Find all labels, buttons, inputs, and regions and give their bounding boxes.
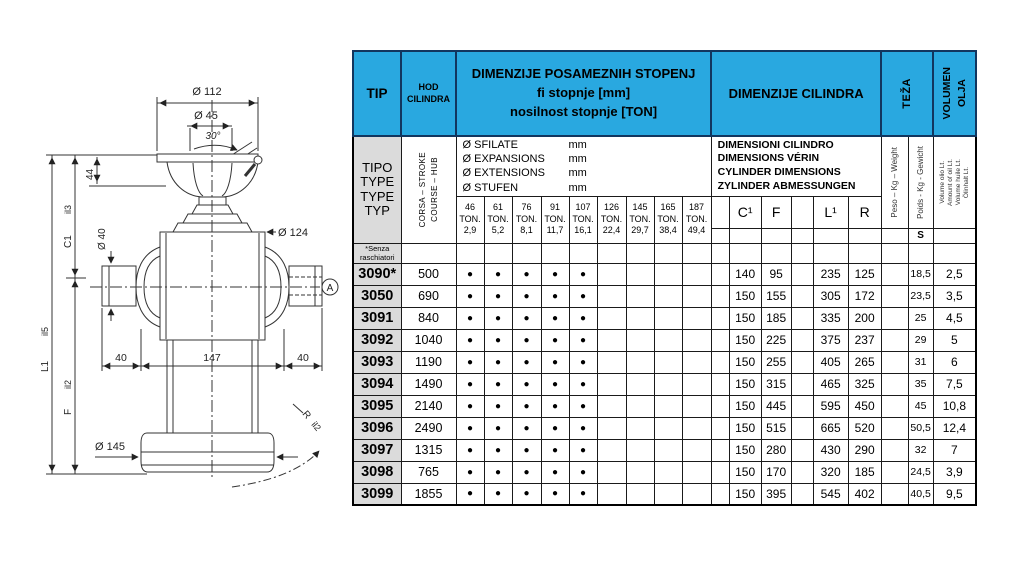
stage-dot-cell: ● xyxy=(484,307,512,329)
spacer-cell xyxy=(791,307,813,329)
spacer-cell xyxy=(711,351,729,373)
stage-dot-cell: ● xyxy=(569,285,597,307)
note-row-empty-cell xyxy=(711,243,729,263)
stroke-cell: 690 xyxy=(401,285,456,307)
note-row-empty-cell xyxy=(597,243,626,263)
stage-dot-cell: ● xyxy=(512,285,541,307)
spacer-cell xyxy=(881,483,908,505)
spacer-cell xyxy=(711,417,729,439)
col-label-l1: L¹ xyxy=(813,196,848,228)
subheader-peso: Peso – Kg – Weight xyxy=(881,136,908,228)
stage-dot-cell xyxy=(597,483,626,505)
stage-dot-cell xyxy=(597,263,626,285)
note-row-empty-cell xyxy=(484,243,512,263)
value-oil-lt: 7,5 xyxy=(933,373,976,395)
value-l1: 405 xyxy=(813,351,848,373)
label-angle30: 30° xyxy=(205,131,220,142)
table-row-3096: 30962490●●●●●15051566552050,512,4 xyxy=(353,417,976,439)
svg-text:C1: C1 xyxy=(63,235,74,248)
value-r: 125 xyxy=(848,263,881,285)
stage-dot-cell: ● xyxy=(569,395,597,417)
spacer-cell xyxy=(711,483,729,505)
stage-dot-cell: ● xyxy=(512,417,541,439)
table-row-3094: 30941490●●●●●150315465325357,5 xyxy=(353,373,976,395)
value-r: 172 xyxy=(848,285,881,307)
stage-dot-cell: ● xyxy=(541,351,569,373)
stage-dot-cell: ● xyxy=(456,285,484,307)
value-f: 255 xyxy=(761,351,791,373)
stage-dot-cell: ● xyxy=(541,417,569,439)
spacer-cell xyxy=(881,307,908,329)
value-oil-lt: 5 xyxy=(933,329,976,351)
spacer-cell xyxy=(711,228,729,243)
value-r: 290 xyxy=(848,439,881,461)
label-40-right: 40 xyxy=(297,352,309,364)
value-l1: 545 xyxy=(813,483,848,505)
value-oil-lt: 4,5 xyxy=(933,307,976,329)
stage-dot-cell: ● xyxy=(541,483,569,505)
ton-col-header-145: 145TON.29,7 xyxy=(626,196,654,243)
value-oil-lt: 6 xyxy=(933,351,976,373)
value-oil-lt: 12,4 xyxy=(933,417,976,439)
stage-dot-cell: ● xyxy=(484,329,512,351)
stage-dot-cell: ● xyxy=(569,461,597,483)
stage-dot-cell xyxy=(682,439,711,461)
value-f: 280 xyxy=(761,439,791,461)
spacer-cell xyxy=(791,351,813,373)
stage-dot-cell xyxy=(626,329,654,351)
ton-col-header-91: 91TON.11,7 xyxy=(541,196,569,243)
stage-dot-cell xyxy=(654,351,682,373)
value-f: 170 xyxy=(761,461,791,483)
note-row-empty-cell xyxy=(761,243,791,263)
value-c1: 150 xyxy=(729,417,761,439)
subheader-tipo-type: TIPOTYPE TYPETYP xyxy=(353,136,401,243)
note-row-empty-cell xyxy=(682,243,711,263)
stage-dot-cell: ● xyxy=(569,483,597,505)
stage-dot-cell: ● xyxy=(456,373,484,395)
value-l1: 465 xyxy=(813,373,848,395)
stage-dot-cell xyxy=(654,285,682,307)
spacer-cell xyxy=(813,228,848,243)
stage-dot-cell: ● xyxy=(456,307,484,329)
spacer-cell xyxy=(791,263,813,285)
svg-text:F: F xyxy=(63,409,74,415)
value-r: 450 xyxy=(848,395,881,417)
stage-dot-cell xyxy=(626,395,654,417)
stroke-cell: 840 xyxy=(401,307,456,329)
header-hod-cilindra: HODCILINDRA xyxy=(401,51,456,136)
ton-col-header-126: 126TON.22,4 xyxy=(597,196,626,243)
label-dia145: Ø 145 xyxy=(95,441,125,453)
stage-dot-cell xyxy=(597,417,626,439)
spacer-cell xyxy=(711,285,729,307)
svg-text:R: R xyxy=(300,409,313,422)
stage-dot-cell: ● xyxy=(484,439,512,461)
stage-dot-cell: ● xyxy=(484,483,512,505)
stage-dot-cell xyxy=(597,351,626,373)
spacer-cell xyxy=(881,417,908,439)
label-dia112: Ø 112 xyxy=(192,86,221,98)
stage-dot-cell: ● xyxy=(541,439,569,461)
note-row-empty-cell xyxy=(791,243,813,263)
stage-dot-cell: ● xyxy=(456,395,484,417)
spacer-cell xyxy=(711,373,729,395)
subheader-dimensioni-block: DIMENSIONI CILINDRO DIMENSIONS VÉRIN CYL… xyxy=(711,136,881,196)
value-l1: 595 xyxy=(813,395,848,417)
note-row-empty-cell xyxy=(512,243,541,263)
radius-leader xyxy=(293,404,303,413)
table-row-3093: 30931190●●●●●150255405265316 xyxy=(353,351,976,373)
stage-dot-cell xyxy=(626,439,654,461)
s-sub-label: S xyxy=(908,228,933,243)
spacer-cell xyxy=(711,329,729,351)
stage-dot-cell: ● xyxy=(456,439,484,461)
stage-dot-cell xyxy=(682,417,711,439)
stage-dot-cell xyxy=(682,263,711,285)
label-40-left: 40 xyxy=(115,352,127,364)
stage-dot-cell xyxy=(597,307,626,329)
spacer-cell xyxy=(791,439,813,461)
stage-dot-cell: ● xyxy=(484,285,512,307)
stage-dot-cell xyxy=(682,351,711,373)
tip-cell: 3093 xyxy=(353,351,401,373)
label-dia45: Ø 45 xyxy=(194,110,218,122)
spacer-cell xyxy=(881,439,908,461)
value-f: 185 xyxy=(761,307,791,329)
value-weight-kg: 18,5 xyxy=(908,263,933,285)
tip-cell: 3092 xyxy=(353,329,401,351)
spacer-cell xyxy=(711,439,729,461)
table-row-3090: 3090*500●●●●●1409523512518,52,5 xyxy=(353,263,976,285)
label-radius: R il2 xyxy=(300,409,323,434)
note-senza-raschiatori: *Senzaraschiatori xyxy=(353,243,401,263)
spacer-cell xyxy=(729,228,761,243)
table-row-3099: 30991855●●●●●15039554540240,59,5 xyxy=(353,483,976,505)
label-44: 44 xyxy=(85,168,96,180)
spacer-cell xyxy=(848,228,881,243)
stroke-cell: 765 xyxy=(401,461,456,483)
stage-dot-cell xyxy=(654,483,682,505)
value-f: 445 xyxy=(761,395,791,417)
value-c1: 150 xyxy=(729,439,761,461)
stage-dot-cell: ● xyxy=(484,351,512,373)
stage-dot-cell: ● xyxy=(512,461,541,483)
header-dimenzije-stopenj: DIMENZIJE POSAMEZNIH STOPENJ fi stopnje … xyxy=(456,51,711,136)
stage-dot-cell: ● xyxy=(569,351,597,373)
stage-dot-cell xyxy=(626,307,654,329)
ton-col-header-165: 165TON.38,4 xyxy=(654,196,682,243)
stage-dot-cell: ● xyxy=(541,461,569,483)
value-oil-lt: 10,8 xyxy=(933,395,976,417)
stage-dot-cell: ● xyxy=(484,417,512,439)
stage-dot-cell: ● xyxy=(569,417,597,439)
header-dimenzije-cilindra: DIMENZIJE CILINDRA xyxy=(711,51,881,136)
stage-dot-cell: ● xyxy=(569,329,597,351)
dimension-line-44 xyxy=(89,157,166,186)
note-row-empty-cell xyxy=(729,243,761,263)
value-r: 185 xyxy=(848,461,881,483)
note-row-empty-cell xyxy=(456,243,484,263)
value-l1: 235 xyxy=(813,263,848,285)
tip-cell: 3090* xyxy=(353,263,401,285)
value-l1: 430 xyxy=(813,439,848,461)
stage-dot-cell: ● xyxy=(456,351,484,373)
stage-dot-cell xyxy=(682,373,711,395)
svg-text:il3: il3 xyxy=(63,205,73,214)
stage-dot-cell xyxy=(682,395,711,417)
subheader-sfilate-block: Ø SFILATEmm Ø EXPANSIONSmm Ø EXTENSIONSm… xyxy=(456,136,711,196)
stage-dot-cell xyxy=(654,263,682,285)
label-147: 147 xyxy=(203,352,221,364)
value-c1: 150 xyxy=(729,373,761,395)
spacer-cell xyxy=(791,395,813,417)
stage-dot-cell xyxy=(597,329,626,351)
value-c1: 150 xyxy=(729,461,761,483)
ton-col-header-61: 61TON.5,2 xyxy=(484,196,512,243)
stage-dot-cell: ● xyxy=(541,373,569,395)
value-c1: 140 xyxy=(729,263,761,285)
value-f: 225 xyxy=(761,329,791,351)
stage-dot-cell: ● xyxy=(541,395,569,417)
spacer-cell xyxy=(791,329,813,351)
ton-col-header-107: 107TON.16,1 xyxy=(569,196,597,243)
stroke-cell: 2140 xyxy=(401,395,456,417)
value-c1: 150 xyxy=(729,285,761,307)
value-oil-lt: 3,9 xyxy=(933,461,976,483)
stage-dot-cell xyxy=(654,439,682,461)
stage-dot-cell xyxy=(597,395,626,417)
value-weight-kg: 25 xyxy=(908,307,933,329)
value-r: 237 xyxy=(848,329,881,351)
stroke-cell: 1855 xyxy=(401,483,456,505)
top-flange xyxy=(157,154,258,162)
subheader-poids: Poids - Kg - Gewicht xyxy=(908,136,933,228)
svg-text:il5: il5 xyxy=(40,327,50,336)
svg-text:il2: il2 xyxy=(63,380,73,389)
stage-dot-cell xyxy=(682,307,711,329)
dimension-line-dia112 xyxy=(157,97,258,151)
value-l1: 375 xyxy=(813,329,848,351)
value-weight-kg: 40,5 xyxy=(908,483,933,505)
value-f: 155 xyxy=(761,285,791,307)
note-row-empty-cell xyxy=(908,243,933,263)
stage-dot-cell xyxy=(654,307,682,329)
stage-dot-cell: ● xyxy=(541,329,569,351)
stage-dot-cell xyxy=(682,461,711,483)
stroke-cell: 1040 xyxy=(401,329,456,351)
stage-dot-cell: ● xyxy=(512,439,541,461)
value-c1: 150 xyxy=(729,395,761,417)
stage-dot-cell xyxy=(626,461,654,483)
stage-dot-cell xyxy=(682,285,711,307)
stage-dot-cell: ● xyxy=(569,263,597,285)
note-row-empty-cell xyxy=(654,243,682,263)
spacer-cell xyxy=(881,373,908,395)
table-row-3091: 3091840●●●●●150185335200254,5 xyxy=(353,307,976,329)
spacer-cell xyxy=(791,228,813,243)
stage-dot-cell: ● xyxy=(569,373,597,395)
spacer-cell xyxy=(881,329,908,351)
value-weight-kg: 23,5 xyxy=(908,285,933,307)
spacer-cell xyxy=(933,228,976,243)
stage-dot-cell: ● xyxy=(569,439,597,461)
value-l1: 665 xyxy=(813,417,848,439)
stage-dot-cell: ● xyxy=(541,307,569,329)
value-l1: 320 xyxy=(813,461,848,483)
stage-dot-cell xyxy=(626,285,654,307)
note-row-empty-cell xyxy=(541,243,569,263)
value-oil-lt: 3,5 xyxy=(933,285,976,307)
stage-dot-cell: ● xyxy=(484,395,512,417)
stage-dot-cell: ● xyxy=(456,483,484,505)
spacer-cell xyxy=(791,373,813,395)
stage-dot-cell: ● xyxy=(569,307,597,329)
value-l1: 335 xyxy=(813,307,848,329)
col-label-c1: C¹ xyxy=(729,196,761,228)
stage-dot-cell: ● xyxy=(512,483,541,505)
spacer-cell xyxy=(881,395,908,417)
header-teza: TEŽA xyxy=(881,51,933,136)
value-r: 265 xyxy=(848,351,881,373)
stage-dot-cell xyxy=(626,417,654,439)
tip-cell: 3091 xyxy=(353,307,401,329)
value-f: 95 xyxy=(761,263,791,285)
spacer-cell xyxy=(881,461,908,483)
stage-dot-cell xyxy=(597,373,626,395)
stroke-cell: 1190 xyxy=(401,351,456,373)
tip-cell: 3096 xyxy=(353,417,401,439)
telescopic-cylinder-diagram: Ø 112 Ø 45 30° 44 Ø 40 Ø 124 40 147 40 Ø… xyxy=(0,0,352,576)
tip-cell: 3097 xyxy=(353,439,401,461)
value-f: 515 xyxy=(761,417,791,439)
label-c1: C1 il3 xyxy=(63,205,74,248)
value-weight-kg: 31 xyxy=(908,351,933,373)
subheader-volume-olio: Volume olio Lt. Amount of oil Lt. Volume… xyxy=(933,136,976,228)
stage-dot-cell xyxy=(682,329,711,351)
header-tip: TIP xyxy=(353,51,401,136)
spacer-cell xyxy=(881,228,908,243)
value-c1: 150 xyxy=(729,351,761,373)
stage-dot-cell xyxy=(654,373,682,395)
value-c1: 150 xyxy=(729,329,761,351)
spacer-cell xyxy=(791,461,813,483)
value-f: 315 xyxy=(761,373,791,395)
ton-col-header-46: 46TON.2,9 xyxy=(456,196,484,243)
col-label-r: R xyxy=(848,196,881,228)
label-dia40: Ø 40 xyxy=(97,228,108,250)
label-f: F il2 xyxy=(63,380,74,415)
value-r: 200 xyxy=(848,307,881,329)
value-oil-lt: 9,5 xyxy=(933,483,976,505)
stage-dot-cell xyxy=(626,483,654,505)
stage-dot-cell xyxy=(626,263,654,285)
stage-dot-cell xyxy=(626,351,654,373)
table-row-3097: 30971315●●●●●150280430290327 xyxy=(353,439,976,461)
specification-table: TIP HODCILINDRA DIMENZIJE POSAMEZNIH STO… xyxy=(352,50,977,506)
stage-dot-cell: ● xyxy=(512,329,541,351)
tip-cell: 3094 xyxy=(353,373,401,395)
label-dia124: Ø 124 xyxy=(278,227,308,239)
stage-dot-cell xyxy=(654,461,682,483)
stage-dot-cell: ● xyxy=(456,329,484,351)
spacer-cell xyxy=(881,285,908,307)
label-section-a: A xyxy=(327,283,334,294)
stage-dot-cell xyxy=(654,329,682,351)
stage-dot-cell: ● xyxy=(512,395,541,417)
spacer-cell xyxy=(711,461,729,483)
spacer-cell xyxy=(711,263,729,285)
spacer-cell xyxy=(881,263,908,285)
trunnion-pin-left xyxy=(102,266,136,306)
value-oil-lt: 7 xyxy=(933,439,976,461)
value-c1: 150 xyxy=(729,483,761,505)
stage-dot-cell: ● xyxy=(484,373,512,395)
spacer-header-cell xyxy=(711,196,729,228)
spacer-cell xyxy=(791,417,813,439)
spacer-cell xyxy=(791,285,813,307)
stage-dot-cell: ● xyxy=(484,263,512,285)
stage-dot-cell xyxy=(597,461,626,483)
value-weight-kg: 35 xyxy=(908,373,933,395)
value-oil-lt: 2,5 xyxy=(933,263,976,285)
label-l1: L1 il5 xyxy=(40,327,51,372)
stage-dot-cell: ● xyxy=(456,417,484,439)
stage-dot-cell xyxy=(654,395,682,417)
note-row-empty-cell xyxy=(933,243,976,263)
value-weight-kg: 32 xyxy=(908,439,933,461)
value-weight-kg: 50,5 xyxy=(908,417,933,439)
table-row-3050: 3050690●●●●●15015530517223,53,5 xyxy=(353,285,976,307)
tip-cell: 3050 xyxy=(353,285,401,307)
svg-text:il2: il2 xyxy=(309,420,322,433)
note-row-empty-cell xyxy=(813,243,848,263)
value-f: 395 xyxy=(761,483,791,505)
ton-col-header-76: 76TON.8,1 xyxy=(512,196,541,243)
spacer-cell xyxy=(791,483,813,505)
stroke-cell: 1315 xyxy=(401,439,456,461)
spacer-cell xyxy=(761,228,791,243)
spacer-cell xyxy=(711,395,729,417)
header-volumen-olja: VOLUMENOLJA xyxy=(933,51,976,136)
stroke-cell: 2490 xyxy=(401,417,456,439)
spacer-header-cell xyxy=(791,196,813,228)
table-row-3098: 3098765●●●●●15017032018524,53,9 xyxy=(353,461,976,483)
table-row-3092: 30921040●●●●●150225375237295 xyxy=(353,329,976,351)
note-row-empty-cell xyxy=(848,243,881,263)
stroke-cell: 500 xyxy=(401,263,456,285)
stage-dot-cell xyxy=(682,483,711,505)
stage-dot-cell: ● xyxy=(456,263,484,285)
spacer-cell xyxy=(711,307,729,329)
stage-dot-cell: ● xyxy=(512,307,541,329)
stage-dot-cell xyxy=(626,373,654,395)
col-label-f: F xyxy=(761,196,791,228)
stage-dot-cell: ● xyxy=(512,351,541,373)
svg-text:L1: L1 xyxy=(40,360,51,372)
value-l1: 305 xyxy=(813,285,848,307)
value-r: 402 xyxy=(848,483,881,505)
stage-dot-cell: ● xyxy=(484,461,512,483)
value-weight-kg: 45 xyxy=(908,395,933,417)
note-row-empty-cell xyxy=(401,243,456,263)
stage-dot-cell xyxy=(597,285,626,307)
tip-cell: 3095 xyxy=(353,395,401,417)
stage-dot-cell xyxy=(654,417,682,439)
stage-dot-cell: ● xyxy=(512,263,541,285)
value-r: 520 xyxy=(848,417,881,439)
value-weight-kg: 24,5 xyxy=(908,461,933,483)
